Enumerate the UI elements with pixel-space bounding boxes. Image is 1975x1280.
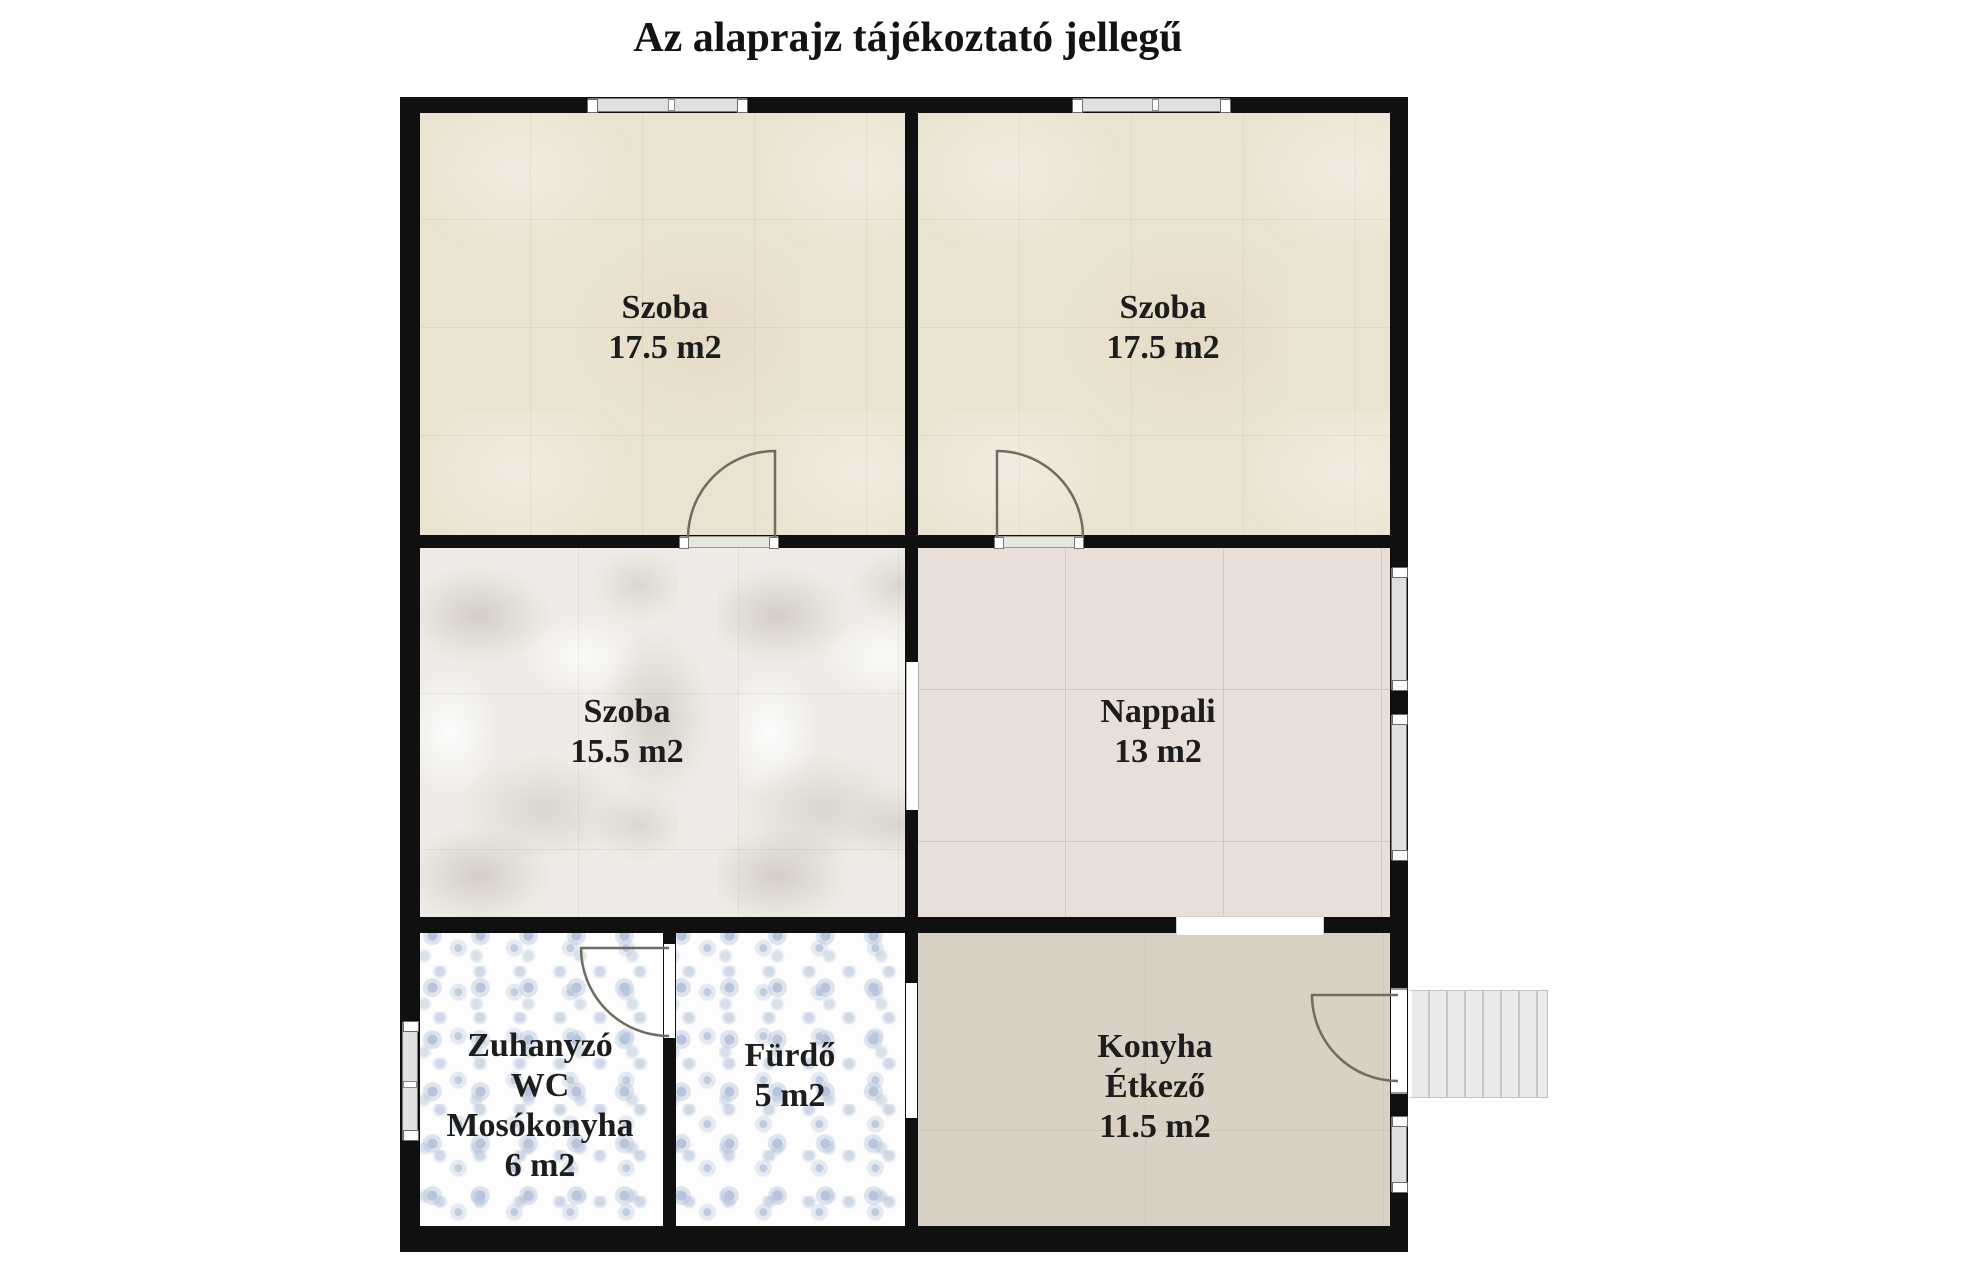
room-area: 5 m2 — [590, 1076, 990, 1116]
room-name: Nappali — [958, 692, 1358, 732]
door-arc-szoba-1 — [688, 451, 775, 537]
room-label-konyha: Konyha Étkező 11.5 m2 — [955, 1027, 1355, 1147]
room-name: Konyha — [955, 1027, 1355, 1067]
room-name: Szoba — [963, 288, 1363, 328]
room-area: 17.5 m2 — [465, 328, 865, 368]
room-area: 15.5 m2 — [427, 732, 827, 772]
room-name: Szoba — [427, 692, 827, 732]
room-area: 17.5 m2 — [963, 328, 1363, 368]
floor-plan-page: Az alaprajz tájékoztató jellegű — [0, 0, 1975, 1280]
room-name: Fürdő — [590, 1036, 990, 1076]
room-label-furdo: Fürdő 5 m2 — [590, 1036, 990, 1116]
door-arc-szoba-2 — [997, 451, 1083, 537]
door-arc-zuhanyzo — [581, 948, 669, 1036]
room-label-szoba-2: Szoba 17.5 m2 — [963, 288, 1363, 368]
room-label-szoba-3: Szoba 15.5 m2 — [427, 692, 827, 772]
room-area: 11.5 m2 — [955, 1107, 1355, 1147]
room-name: Étkező — [955, 1067, 1355, 1107]
room-name: Szoba — [465, 288, 865, 328]
room-label-szoba-1: Szoba 17.5 m2 — [465, 288, 865, 368]
room-area: 13 m2 — [958, 732, 1358, 772]
room-area: 6 m2 — [340, 1146, 740, 1186]
room-label-nappali: Nappali 13 m2 — [958, 692, 1358, 772]
